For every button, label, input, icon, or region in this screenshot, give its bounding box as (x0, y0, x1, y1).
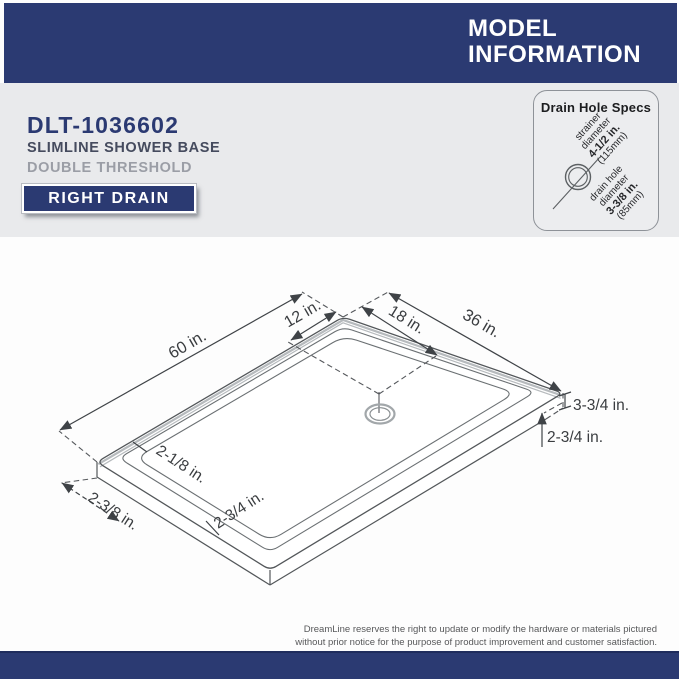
label-2-34in-right: 2-3/4 in. (547, 429, 603, 446)
disclaimer-line2: without prior notice for the purpose of … (295, 637, 657, 650)
label-60in: 60 in. (166, 327, 210, 363)
product-spec-sheet: MODEL INFORMATION DLT-1036602 SLIMLINE S… (0, 0, 679, 679)
disclaimer: DreamLine reserves the right to update o… (295, 624, 657, 649)
disclaimer-line1: DreamLine reserves the right to update o… (295, 624, 657, 637)
label-3-34in: 3-3/4 in. (573, 397, 629, 414)
label-18in: 18 in. (385, 303, 427, 338)
shower-base-dimension-diagram: 60 in. 12 in. 18 in. 36 in. 3-3/4 in. 2-… (0, 0, 679, 679)
footer-bar (0, 651, 679, 679)
label-36in: 36 in. (460, 306, 504, 342)
